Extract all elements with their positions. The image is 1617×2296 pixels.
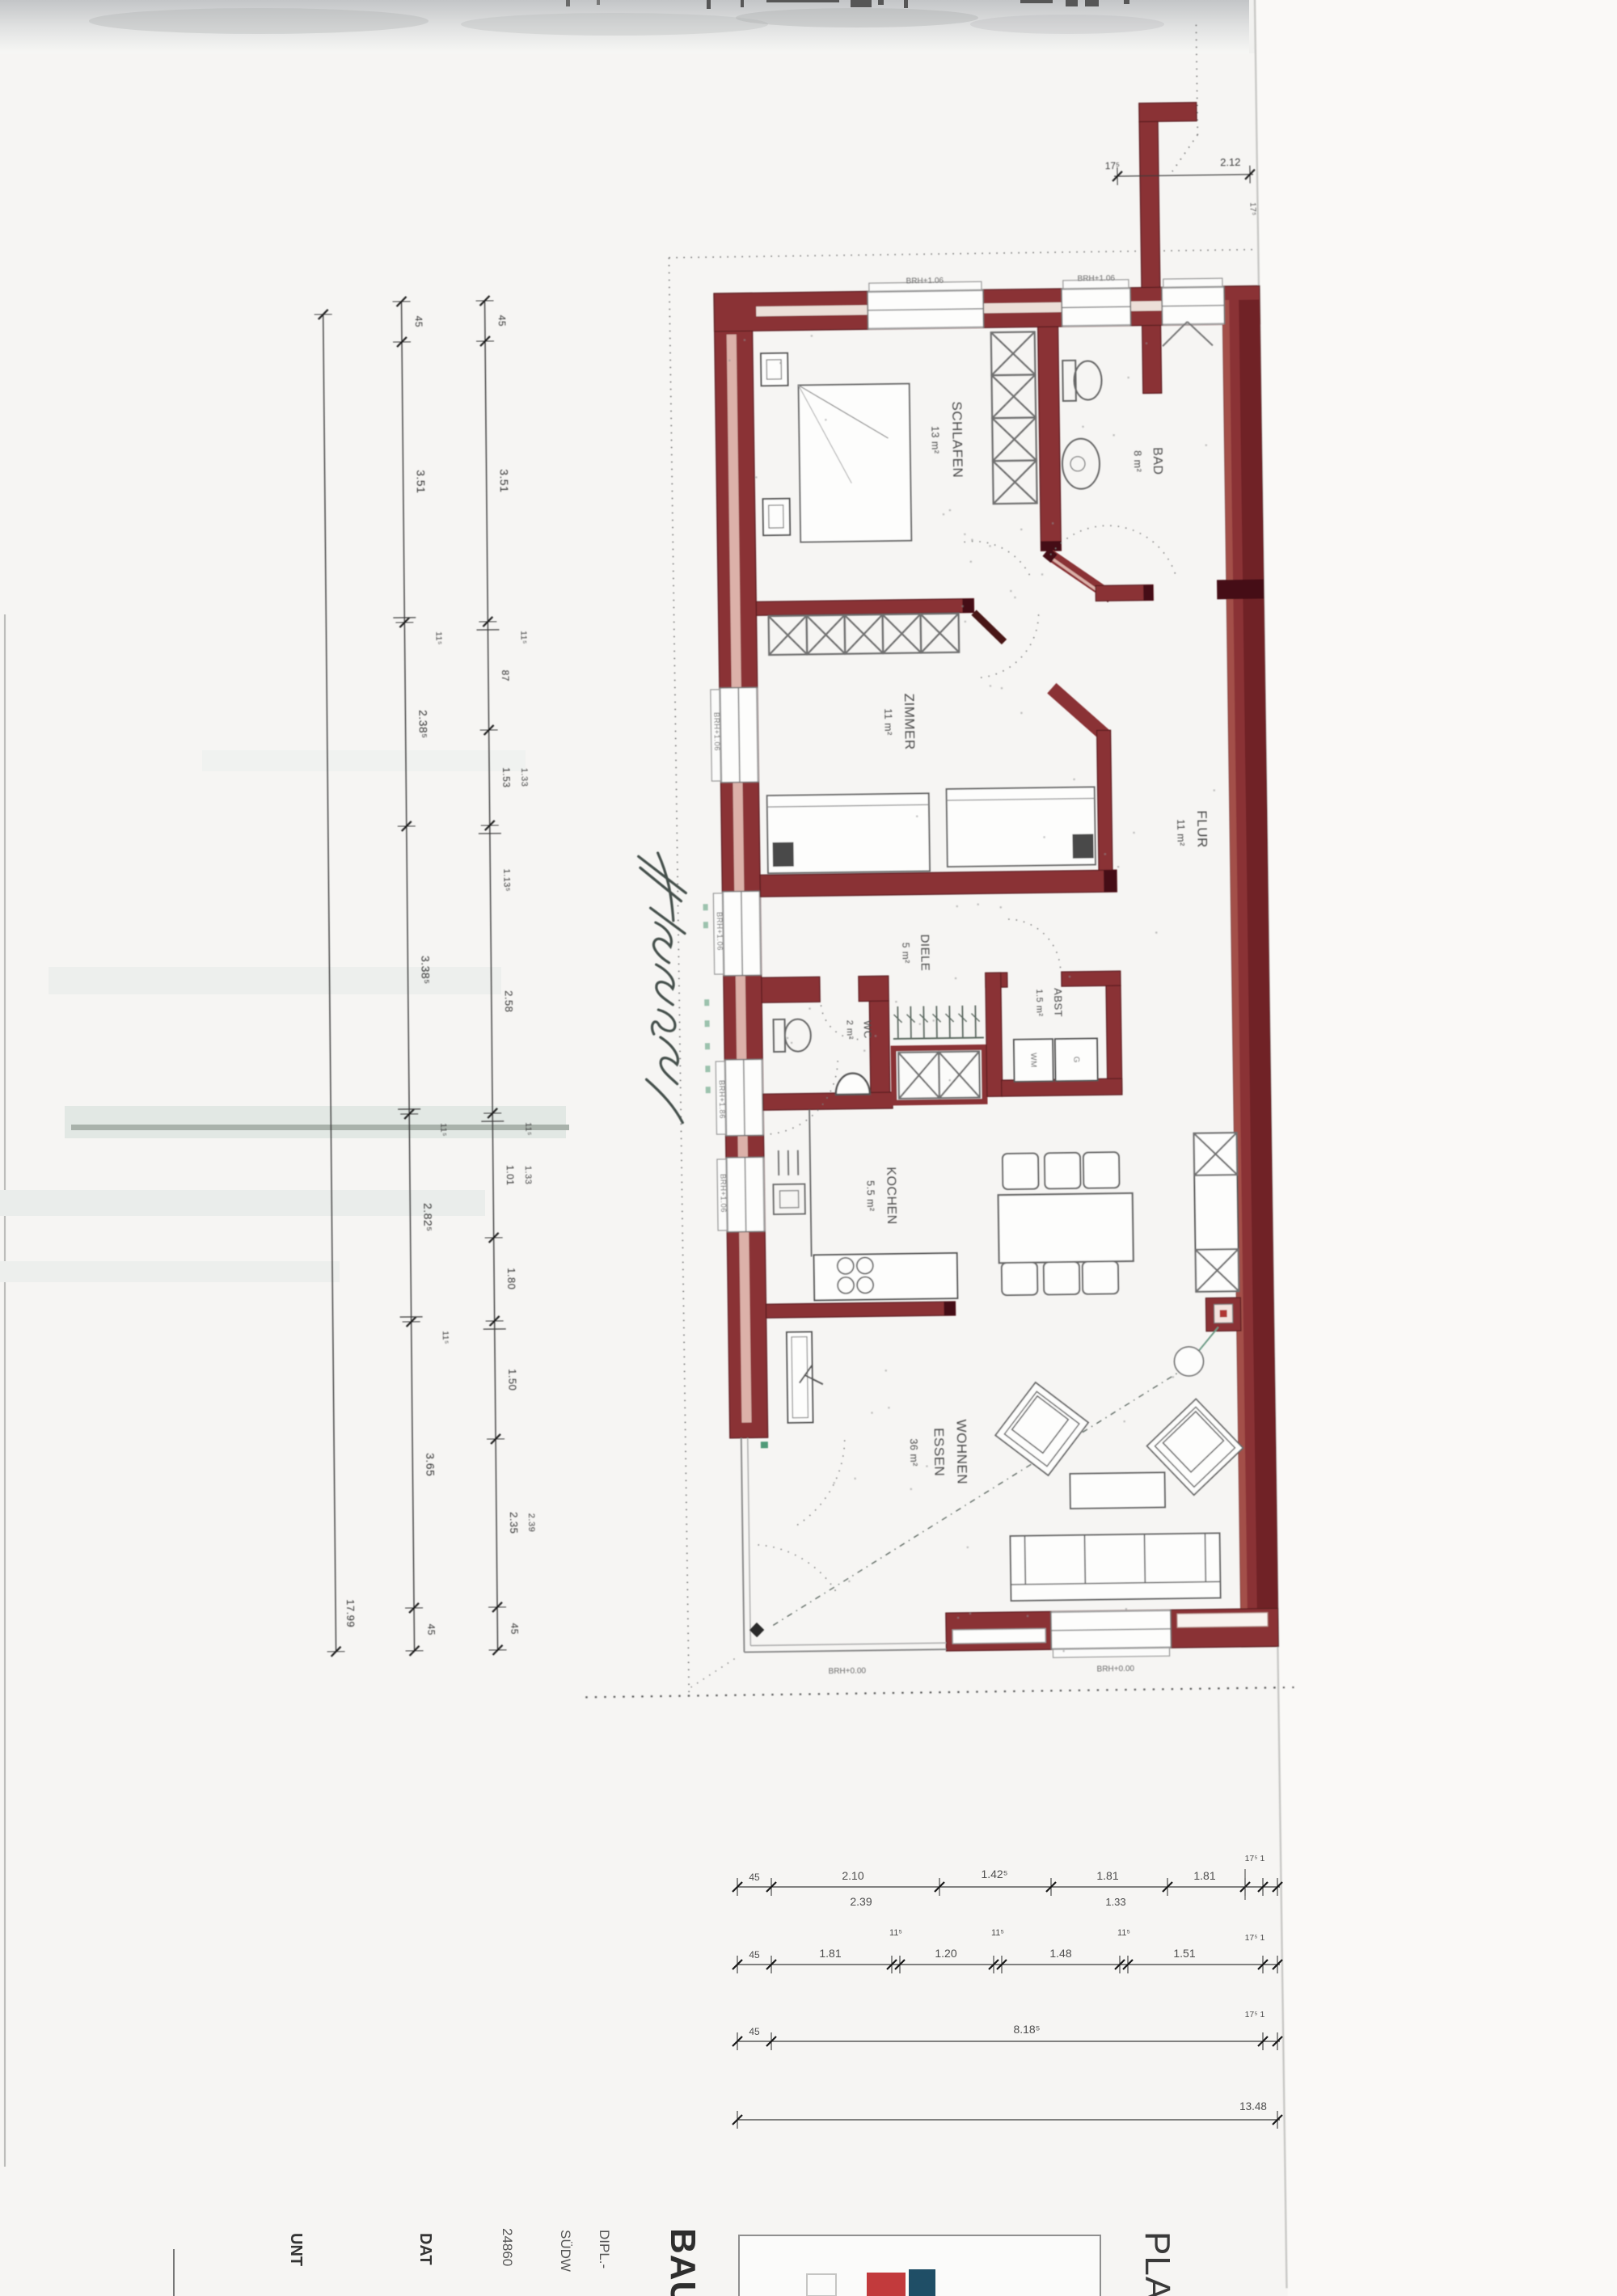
svg-text:BAU: BAU	[663, 2228, 703, 2296]
svg-text:ABST: ABST	[1052, 988, 1065, 1017]
svg-text:2.58: 2.58	[503, 990, 515, 1012]
svg-text:45: 45	[509, 1623, 520, 1634]
svg-text:SCHLAFEN: SCHLAFEN	[949, 401, 965, 478]
svg-text:11⁵: 11⁵	[518, 631, 528, 644]
svg-text:11⁵: 11⁵	[991, 1928, 1004, 1938]
svg-text:1.80: 1.80	[505, 1268, 517, 1289]
svg-text:3.51: 3.51	[498, 469, 511, 492]
svg-text:45: 45	[749, 1872, 760, 1883]
svg-text:45: 45	[749, 1949, 760, 1960]
svg-text:BRH+1.06: BRH+1.06	[1078, 274, 1116, 284]
svg-text:2.35: 2.35	[508, 1512, 520, 1534]
svg-text:17⁵ 1: 17⁵ 1	[1245, 1933, 1265, 1943]
svg-text:11⁵: 11⁵	[523, 1122, 533, 1136]
svg-text:WC: WC	[862, 1020, 874, 1039]
svg-text:5.5 m²: 5.5 m²	[864, 1180, 876, 1212]
svg-text:24860: 24860	[500, 2228, 515, 2266]
svg-text:2.39: 2.39	[526, 1513, 536, 1533]
svg-text:BRH+1.06: BRH+1.06	[711, 712, 721, 751]
svg-text:1.5 m²: 1.5 m²	[1034, 989, 1044, 1016]
svg-text:G: G	[1071, 1057, 1080, 1063]
svg-text:BRH+1.06: BRH+1.06	[718, 1174, 728, 1213]
svg-text:UNT: UNT	[287, 2233, 305, 2266]
svg-text:ZIMMER: ZIMMER	[901, 694, 918, 750]
svg-text:11⁵: 11⁵	[441, 1331, 450, 1344]
svg-text:11⁵: 11⁵	[438, 1123, 448, 1137]
svg-text:1.33: 1.33	[523, 1166, 533, 1185]
svg-text:2.82⁵: 2.82⁵	[421, 1203, 434, 1232]
svg-text:1.13⁵: 1.13⁵	[501, 868, 511, 892]
svg-text:1.53: 1.53	[500, 767, 512, 787]
svg-text:1.42⁵: 1.42⁵	[981, 1868, 1007, 1880]
svg-text:45: 45	[413, 316, 424, 327]
svg-text:DIELE: DIELE	[918, 934, 932, 971]
svg-text:8 m²: 8 m²	[1132, 450, 1143, 472]
svg-text:36 m²: 36 m²	[908, 1438, 919, 1467]
svg-text:1.81: 1.81	[1193, 1869, 1215, 1882]
svg-text:11⁵: 11⁵	[1117, 1928, 1130, 1938]
svg-text:SÜDW: SÜDW	[558, 2230, 573, 2272]
svg-text:BAD: BAD	[1150, 447, 1164, 475]
svg-text:WOHNEN: WOHNEN	[953, 1420, 969, 1485]
svg-text:BRH+1.86: BRH+1.86	[717, 1080, 727, 1119]
svg-text:11 m²: 11 m²	[882, 708, 893, 736]
svg-text:17.99: 17.99	[344, 1599, 357, 1627]
svg-text:45: 45	[749, 2026, 760, 2037]
svg-text:87: 87	[500, 670, 511, 682]
svg-text:BRH+1.06: BRH+1.06	[906, 276, 944, 286]
svg-text:13 m²: 13 m²	[929, 426, 940, 454]
svg-text:1.51: 1.51	[1173, 1947, 1195, 1960]
svg-text:PLA: PLA	[1138, 2231, 1177, 2296]
svg-text:1.33: 1.33	[519, 768, 529, 787]
svg-text:2 m²: 2 m²	[845, 1020, 855, 1040]
svg-text:1.33: 1.33	[1105, 1896, 1125, 1908]
svg-text:11 m²: 11 m²	[1175, 819, 1186, 846]
svg-text:DAT: DAT	[416, 2233, 434, 2265]
svg-text:13.48: 13.48	[1239, 2100, 1267, 2112]
svg-text:2.39: 2.39	[850, 1895, 872, 1908]
svg-text:BRH+0.00: BRH+0.00	[829, 1667, 867, 1677]
svg-text:3.38⁵: 3.38⁵	[419, 956, 432, 985]
svg-text:BRH+1.06: BRH+1.06	[715, 912, 724, 951]
svg-text:FLUR: FLUR	[1194, 810, 1210, 848]
svg-text:17⁵ 1: 17⁵ 1	[1245, 2010, 1265, 2020]
svg-text:1.01: 1.01	[505, 1165, 516, 1185]
svg-text:17⁵ 1: 17⁵ 1	[1245, 1854, 1265, 1863]
svg-text:1.50: 1.50	[506, 1369, 518, 1391]
svg-text:11⁵: 11⁵	[889, 1928, 902, 1938]
svg-text:8.18⁵: 8.18⁵	[1013, 2023, 1040, 2036]
svg-text:BRH+0.00: BRH+0.00	[1097, 1665, 1135, 1674]
svg-text:2.38⁵: 2.38⁵	[416, 710, 429, 739]
svg-text:17⁵: 17⁵	[1105, 160, 1121, 171]
svg-text:3.51: 3.51	[415, 470, 428, 493]
svg-text:5 m²: 5 m²	[900, 943, 911, 964]
svg-text:45: 45	[425, 1623, 437, 1635]
svg-text:DIPL.-: DIPL.-	[597, 2230, 612, 2269]
svg-text:1.81: 1.81	[1096, 1869, 1118, 1882]
svg-text:1.48: 1.48	[1049, 1947, 1071, 1960]
svg-text:3.65: 3.65	[424, 1453, 437, 1476]
svg-text:WM: WM	[1028, 1053, 1037, 1068]
svg-text:17⁵: 17⁵	[1248, 202, 1256, 216]
svg-text:ESSEN: ESSEN	[931, 1428, 948, 1476]
svg-text:KOCHEN: KOCHEN	[884, 1167, 898, 1225]
svg-text:1.81: 1.81	[819, 1947, 841, 1960]
svg-text:11⁵: 11⁵	[433, 631, 443, 645]
svg-text:2.10: 2.10	[842, 1869, 863, 1882]
svg-text:1.20: 1.20	[935, 1947, 956, 1960]
svg-text:2.12: 2.12	[1220, 156, 1241, 168]
svg-text:45: 45	[496, 315, 508, 327]
